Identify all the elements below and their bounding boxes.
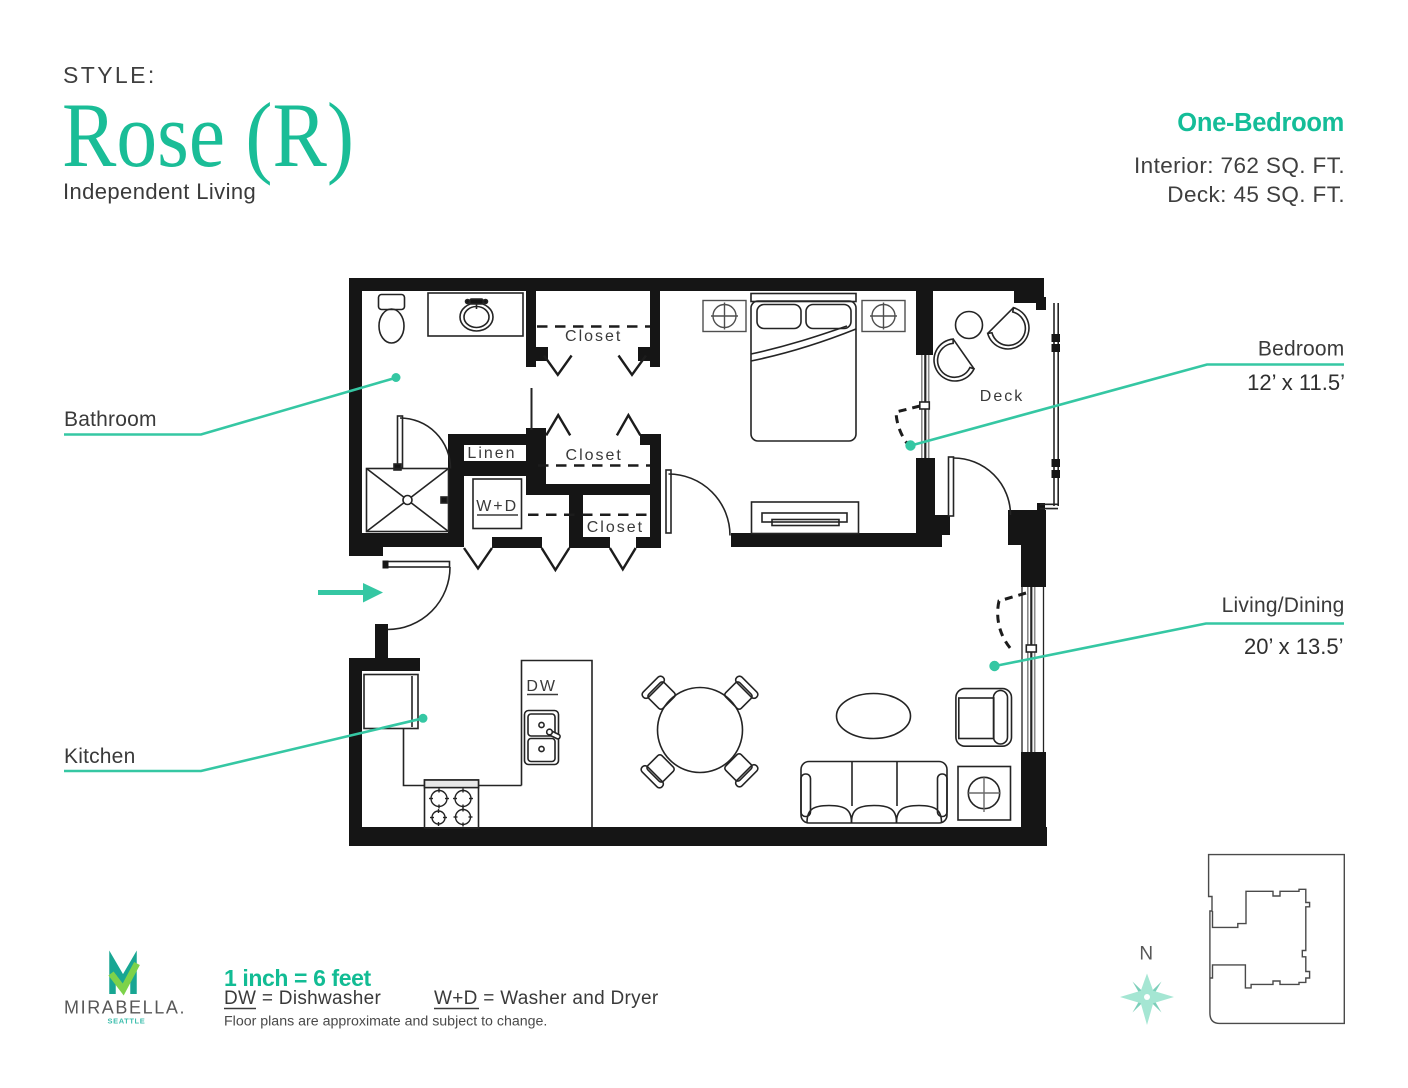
svg-text:Floor plans are approximate an: Floor plans are approximate and subject …	[224, 1014, 547, 1030]
svg-text:Rose (R): Rose (R)	[62, 84, 354, 186]
svg-text:One-Bedroom: One-Bedroom	[1177, 109, 1344, 137]
svg-text:Kitchen: Kitchen	[64, 745, 135, 768]
svg-text:Deck: 45 SQ. FT.: Deck: 45 SQ. FT.	[1167, 182, 1345, 207]
svg-text:Closet: Closet	[565, 328, 622, 345]
svg-text:Closet: Closet	[587, 519, 644, 536]
svg-text:Deck: Deck	[980, 388, 1024, 405]
svg-text:Bathroom: Bathroom	[64, 408, 157, 431]
svg-text:Interior: 762 SQ. FT.: Interior: 762 SQ. FT.	[1134, 153, 1345, 178]
svg-text:Independent Living: Independent Living	[63, 179, 256, 204]
svg-text:Linen: Linen	[467, 445, 516, 462]
svg-text:W+D: W+D	[476, 498, 518, 515]
svg-text:DW = Dishwasher: DW = Dishwasher	[224, 988, 381, 1009]
svg-text:20’ x 13.5’: 20’ x 13.5’	[1244, 634, 1343, 659]
svg-text:SEATTLE: SEATTLE	[108, 1017, 146, 1026]
svg-text:Bedroom: Bedroom	[1258, 338, 1345, 361]
svg-text:MIRABELLA.: MIRABELLA.	[64, 998, 186, 1018]
svg-text:DW: DW	[526, 678, 557, 695]
svg-text:Living/Dining: Living/Dining	[1222, 594, 1345, 617]
svg-text:12’ x 11.5’: 12’ x 11.5’	[1247, 370, 1345, 395]
svg-text:W+D = Washer and Dryer: W+D = Washer and Dryer	[434, 988, 659, 1009]
svg-text:N: N	[1139, 944, 1153, 965]
svg-text:Closet: Closet	[566, 447, 623, 464]
